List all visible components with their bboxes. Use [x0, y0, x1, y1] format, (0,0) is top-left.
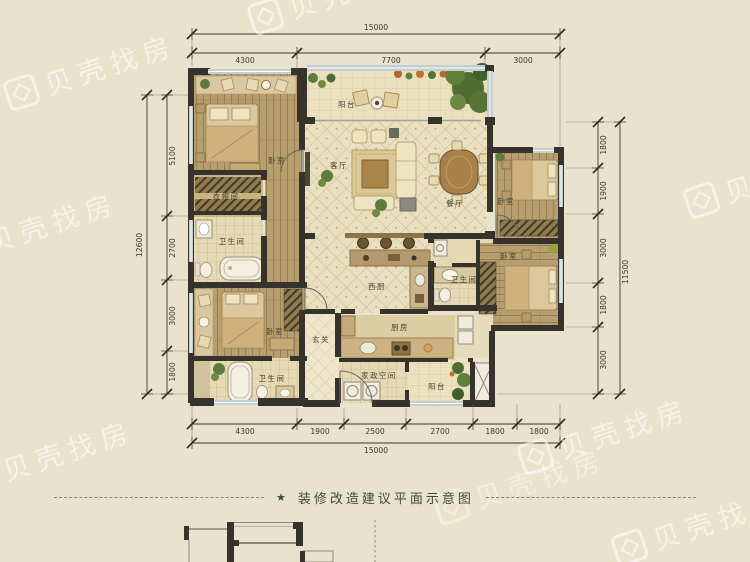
dim-top-seg: 4300 [235, 56, 254, 65]
dim-left-seg: 1800 [168, 362, 177, 381]
caption-title: 装修改造建议平面示意图 [298, 488, 474, 507]
secondary-plan-partial [184, 520, 375, 562]
room-entry [303, 313, 339, 405]
floorplan-image: 卧室 衣帽间 卫生间 阳台 客厅 餐厅 卧室 卧室 卫生间 西厨 玄关 卧室 卫… [0, 0, 750, 562]
dim-right-total: 11500 [621, 260, 630, 284]
dim-left-seg: 2700 [168, 238, 177, 257]
dim-bottom-seg: 2700 [430, 427, 449, 436]
dim-left-seg: 3000 [168, 306, 177, 325]
label-bathroom-top-left: 卫生间 [219, 237, 246, 246]
wardrobe-hatch [195, 177, 261, 193]
dim-left-total: 12600 [135, 233, 144, 257]
label-balcony-top: 阳台 [338, 100, 356, 109]
label-bedroom-bottom-left: 卧室 [266, 327, 284, 336]
furniture-bed-top-right [496, 153, 559, 237]
dim-top-seg: 3000 [513, 56, 532, 65]
label-bedroom-top-right: 卧室 [497, 197, 515, 206]
dim-top-seg: 7700 [381, 56, 400, 65]
bath-ledge [193, 358, 210, 403]
dim-bottom-seg: 1800 [485, 427, 504, 436]
dim-bottom-seg: 4300 [235, 427, 254, 436]
floorplan-page: 卧室 衣帽间 卫生间 阳台 客厅 餐厅 卧室 卧室 卫生间 西厨 玄关 卧室 卫… [0, 0, 750, 562]
label-cloakroom: 衣帽间 [213, 192, 240, 201]
dim-right-seg: 1900 [599, 181, 608, 200]
hallway-wood [265, 175, 302, 287]
dimension-bottom: 4300 1900 2500 2700 1800 1800 15000 [187, 404, 565, 455]
caption-dash-right [486, 497, 696, 498]
label-dining-room: 餐厅 [446, 199, 464, 208]
dim-right-seg: 1800 [599, 135, 608, 154]
dim-left-seg: 5100 [168, 146, 177, 165]
star-icon: ★ [276, 491, 286, 504]
dim-bottom-seg: 1800 [529, 427, 548, 436]
label-bedroom-mid-right: 卧室 [500, 252, 518, 261]
dim-right-seg: 3000 [599, 350, 608, 369]
dim-bottom-total: 15000 [364, 446, 388, 455]
label-housekeeping: 家政空间 [361, 371, 397, 380]
dim-right-seg: 1800 [599, 295, 608, 314]
caption-row: ★ 装修改造建议平面示意图 [0, 488, 750, 507]
dimension-left: 5100 2700 3000 1800 12600 [135, 90, 189, 399]
dim-bottom-seg: 2500 [365, 427, 384, 436]
dim-top-total: 15000 [364, 23, 388, 32]
label-entry: 玄关 [312, 335, 330, 344]
label-bathroom-mid-right: 卫生间 [451, 275, 478, 284]
label-bathroom-bottom-left: 卫生间 [259, 374, 286, 383]
caption-dash-left [54, 497, 264, 498]
label-west-kitchen: 西厨 [368, 282, 386, 291]
dim-bottom-seg: 1900 [310, 427, 329, 436]
label-kitchen: 厨房 [391, 323, 409, 332]
label-balcony-bottom: 阳台 [428, 382, 446, 391]
label-bedroom-top-left: 卧室 [268, 156, 286, 165]
label-living-room: 客厅 [330, 161, 348, 170]
dim-right-seg: 3000 [599, 238, 608, 257]
